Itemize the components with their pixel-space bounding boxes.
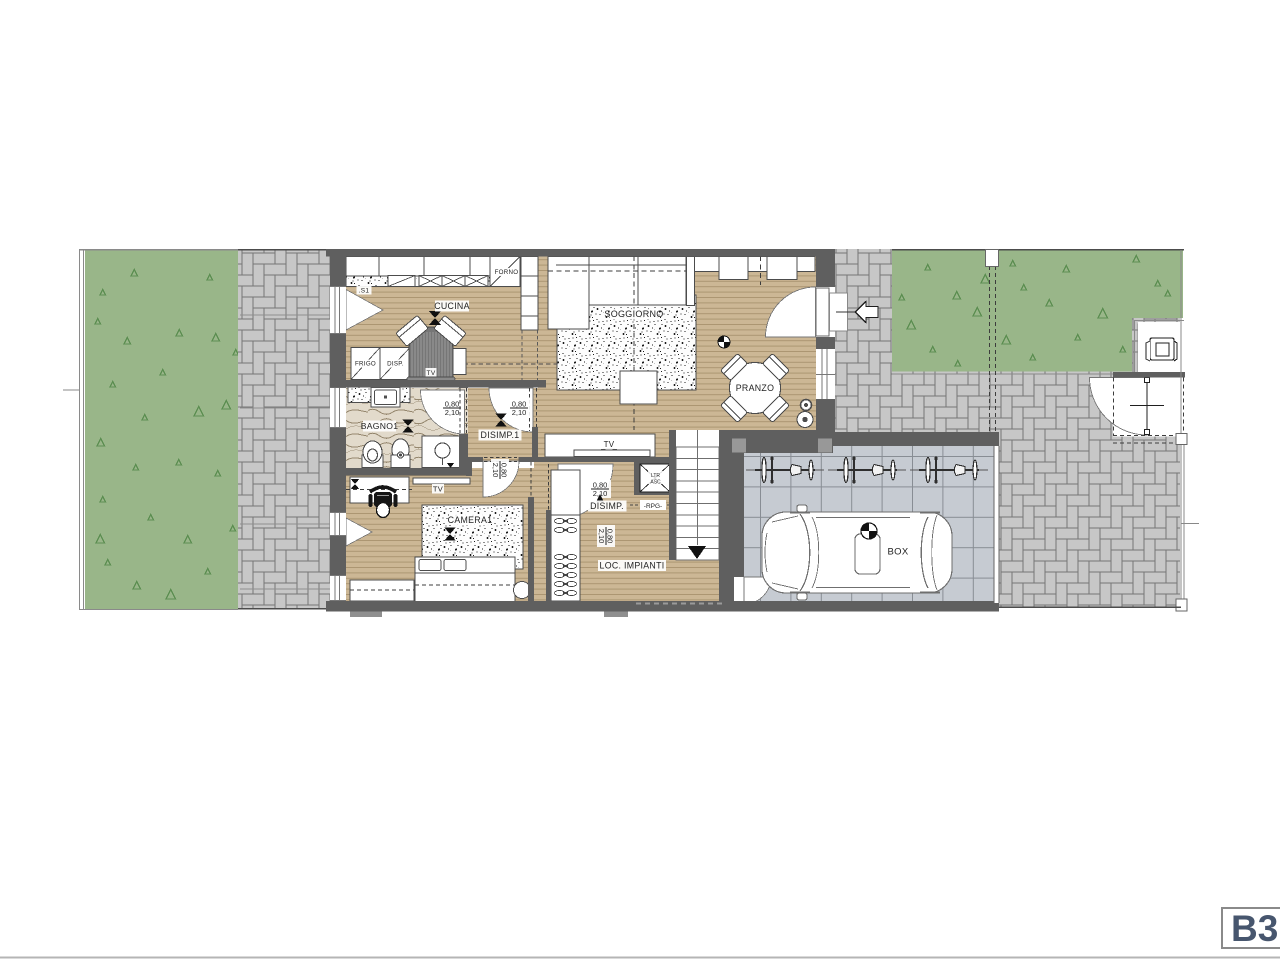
svg-text:FRIGO: FRIGO	[355, 361, 376, 368]
svg-text:BAGNO1: BAGNO1	[361, 421, 399, 431]
svg-text:B3: B3	[1231, 908, 1278, 949]
svg-text:DISIMP.: DISIMP.	[590, 501, 624, 511]
svg-text:PRANZO: PRANZO	[736, 383, 774, 393]
svg-text:TV: TV	[427, 370, 436, 377]
svg-text:2,10: 2,10	[445, 408, 460, 417]
svg-text:DISP.: DISP.	[387, 361, 404, 368]
svg-text:SOGGIORNO: SOGGIORNO	[604, 309, 663, 319]
svg-text:DISIMP.1: DISIMP.1	[481, 430, 520, 440]
svg-text:TV: TV	[604, 440, 615, 449]
svg-text:LOC. IMPIANTI: LOC. IMPIANTI	[600, 561, 665, 571]
svg-text:FORNO: FORNO	[495, 269, 519, 276]
svg-text:ASC: ASC	[650, 480, 661, 486]
svg-text:LTR: LTR	[651, 473, 660, 479]
svg-text:2,10: 2,10	[491, 463, 500, 478]
svg-text:2,10: 2,10	[597, 529, 606, 544]
svg-text:.S1: .S1	[359, 287, 370, 294]
svg-text:2,10: 2,10	[512, 408, 527, 417]
svg-text:BOX: BOX	[888, 546, 909, 557]
svg-text:CAMERA1: CAMERA1	[448, 515, 493, 525]
svg-text:-RPG-: -RPG-	[644, 503, 662, 510]
svg-text:CUCINA: CUCINA	[434, 301, 470, 311]
svg-text:TV: TV	[433, 485, 443, 494]
